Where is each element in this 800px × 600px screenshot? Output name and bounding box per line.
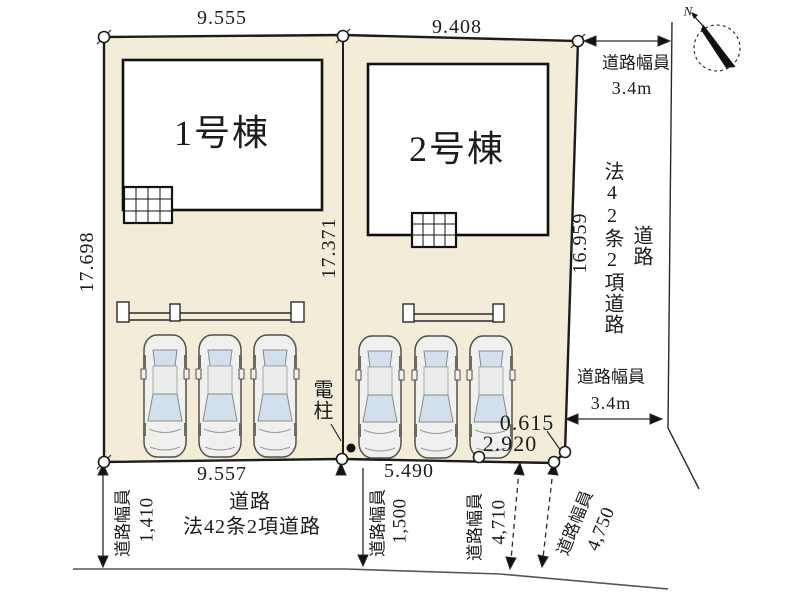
dim-left: 17.698: [77, 232, 97, 293]
road-width-label-right: 道路幅員: [577, 369, 645, 386]
road-width-value-top: 3.4m: [612, 79, 653, 97]
dim-corner-long: 2.920: [483, 433, 538, 455]
utility-pole-icon: [347, 444, 356, 453]
road-width-label-top: 道路幅員: [602, 55, 670, 72]
dim-bottom-mid: 5.490: [384, 461, 434, 481]
dim-line-34-top: [584, 36, 670, 46]
car-icon-lot2-2: [412, 336, 460, 458]
terrace-grid-icon-b2: [412, 213, 456, 247]
site-plan: 1号棟 2号棟 9.555 9.408 17.698 17.371 16.959…: [0, 0, 800, 600]
dim-top-left: 9.555: [197, 8, 247, 28]
car-icon-lot2-1: [356, 336, 404, 458]
car-icon-lot1-3: [251, 335, 299, 457]
dim-top-right: 9.408: [432, 17, 482, 37]
building-1-label: 1号棟: [174, 115, 270, 151]
terrace-grid-icon-b1: [124, 187, 172, 223]
north-arrow-icon: [691, 12, 740, 71]
road-bottom-name-1: 道路: [229, 492, 271, 512]
road-right-name-2: 法42条2項道路: [602, 161, 622, 335]
north-label: N: [684, 5, 693, 18]
road-width-value-1410: 1,410: [138, 497, 157, 542]
road-width-label-4710: 道路幅員: [467, 493, 484, 561]
road-width-value-right: 3.4m: [591, 394, 632, 412]
road-width-label-1500: 道路幅員: [370, 489, 387, 557]
road-edge-bottom: [73, 569, 668, 589]
road-edge-right: [668, 22, 699, 489]
road-width-label-1410: 道路幅員: [115, 489, 132, 557]
dim-line-1500: [336, 463, 368, 566]
dim-center: 17.371: [319, 218, 339, 279]
road-right-name-1: 道路: [631, 225, 651, 267]
road-bottom-name-2: 法42条2項道路: [183, 517, 321, 537]
road-width-value-1500: 1,500: [391, 498, 410, 543]
dim-line-1410: [98, 464, 108, 567]
car-icon-lot1-2: [196, 335, 244, 457]
utility-pole-label: 電柱: [311, 379, 331, 421]
dim-right: 16.959: [570, 213, 590, 274]
dim-bottom-left: 9.557: [197, 464, 247, 484]
building-2-label: 2号棟: [409, 131, 505, 167]
dim-line-34-right: [566, 414, 662, 424]
road-width-value-4710: 4,710: [490, 499, 509, 544]
car-icon-lot1-1: [141, 335, 189, 457]
